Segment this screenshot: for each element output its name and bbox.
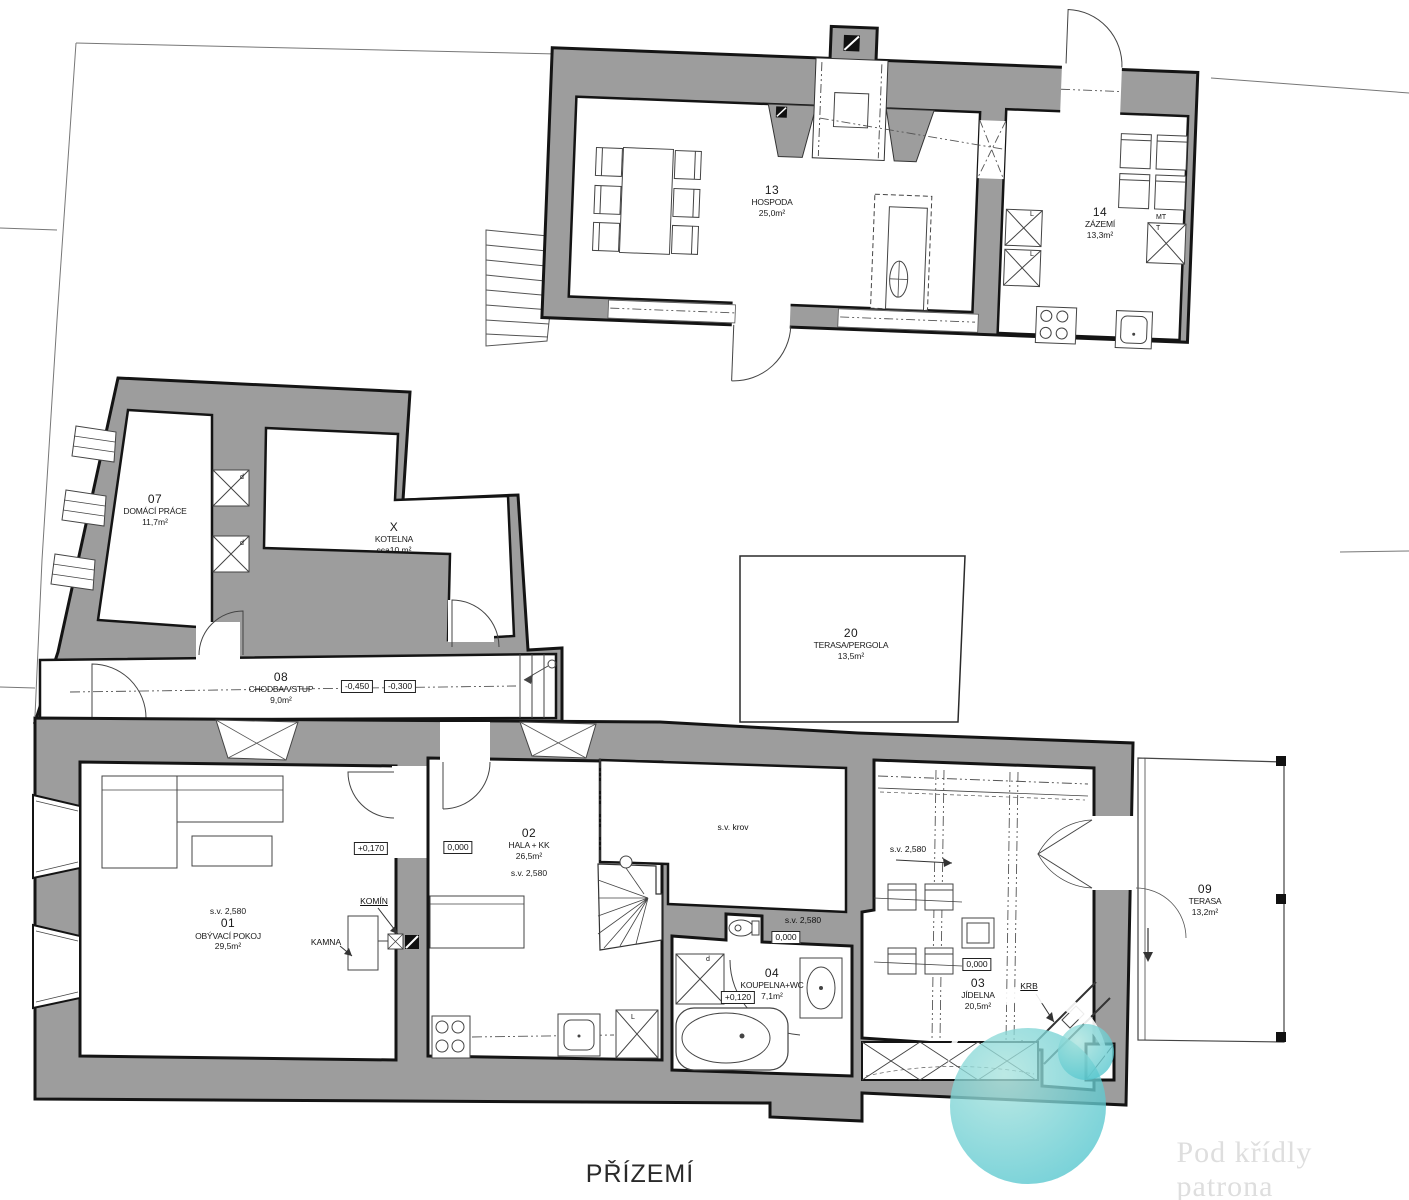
chimney-annotation: KOMÍN [360, 896, 388, 906]
room-name: KOTELNA [375, 534, 413, 544]
room-number: 20 [814, 626, 889, 640]
room-name: JÍDELNA [961, 990, 995, 1000]
room-number: 03 [961, 976, 995, 990]
room-number: X [375, 520, 413, 534]
duct-tag-b: d [240, 540, 244, 547]
room-label-hospoda: 13 HOSPODA 25,0m² [751, 183, 792, 218]
room-name: OBÝVACÍ POKOJ [195, 931, 261, 941]
room-label-kotelna: X KOTELNA cca10 m² [375, 520, 413, 555]
level-marker-corridor-left: -0,450 [341, 680, 373, 693]
mt-tag: MT [1156, 214, 1166, 221]
room-area: cca10 m² [375, 545, 413, 555]
room-number: 14 [1085, 205, 1115, 219]
floorplan-drawing [0, 0, 1409, 1200]
t-tag: T [1156, 225, 1160, 232]
fridge-tag-b: L [1030, 251, 1034, 258]
ceiling-height: s.v. 2,580 [509, 868, 550, 878]
top-building [540, 0, 1200, 398]
room-label-jidelna: 03 JÍDELNA 20,5m² [961, 976, 995, 1011]
room-number: 04 [740, 966, 803, 980]
room-name: TERASA/PERGOLA [814, 640, 889, 650]
level-marker-hala: 0,000 [443, 841, 472, 854]
fireplace-annotation: KRB [1020, 981, 1037, 991]
room-label-terasa-pergola: 20 TERASA/PERGOLA 13,5m² [814, 626, 889, 661]
stove-annotation: KAMNA [311, 937, 341, 947]
room-label-terasa: 09 TERASA 13,2m² [1189, 882, 1222, 917]
page-title: PŘÍZEMÍ [586, 1160, 694, 1189]
room-area: 20,5m² [961, 1001, 995, 1011]
room-area: 26,5m² [509, 851, 550, 861]
watermark-text: Pod křídly patrona realit [1177, 1136, 1332, 1200]
room-number: 08 [249, 670, 314, 684]
room-name: DOMÁCÍ PRÁCE [123, 506, 186, 516]
open-roof-label: s.v. krov [717, 822, 748, 832]
room-area: 9,0m² [249, 695, 314, 705]
room-area: 29,5m² [195, 941, 261, 951]
room-label-domaci-prace: 07 DOMÁCÍ PRÁCE 11,7m² [123, 492, 186, 527]
room-number: 09 [1189, 882, 1222, 896]
room-label-obyvaci-pokoj: s.v. 2,580 01 OBÝVACÍ POKOJ 29,5m² [195, 906, 261, 951]
room-name: HOSPODA [751, 197, 792, 207]
fridge-tag-a: L [1030, 211, 1034, 218]
floorplan-page: 13 HOSPODA 25,0m² 14 ZÁZEMÍ 13,3m² 07 DO… [0, 0, 1409, 1200]
room-label-chodba: 08 CHODBA/VSTUP 9,0m² [249, 670, 314, 705]
ceiling-height-wc: s.v. 2,580 [785, 915, 821, 925]
room-label-zazemi: 14 ZÁZEMÍ 13,3m² [1085, 205, 1115, 240]
level-marker-corridor-right: -0,300 [384, 680, 416, 693]
room-name: ZÁZEMÍ [1085, 219, 1115, 229]
room-number: 07 [123, 492, 186, 506]
level-marker-bathroom: +0,120 [721, 991, 755, 1004]
room-name: HALA + KK [509, 840, 550, 850]
ceiling-height-jidelna: s.v. 2,580 [890, 844, 926, 854]
fridge-tag-c: L [631, 1014, 635, 1021]
level-marker-wc: 0,000 [771, 931, 800, 944]
room-area: 13,5m² [814, 651, 889, 661]
room-area: 13,3m² [1085, 230, 1115, 240]
level-marker-living-door: +0,170 [354, 842, 388, 855]
room-number: 02 [509, 826, 550, 840]
room-name: CHODBA/VSTUP [249, 684, 314, 694]
room-number: 01 [195, 916, 261, 930]
room-name: TERASA [1189, 896, 1222, 906]
room-area: 11,7m² [123, 517, 186, 527]
duct-tag-c: d [706, 956, 710, 963]
room-area: 25,0m² [751, 208, 792, 218]
ceiling-height: s.v. 2,580 [195, 906, 261, 916]
room-number: 13 [751, 183, 792, 197]
level-marker-dining: 0,000 [962, 958, 991, 971]
duct-tag-a: d [240, 474, 244, 481]
room-name: KOUPELNA+WC [740, 980, 803, 990]
room-area: 13,2m² [1189, 907, 1222, 917]
room-label-hala: 02 HALA + KK 26,5m² s.v. 2,580 [509, 826, 550, 878]
